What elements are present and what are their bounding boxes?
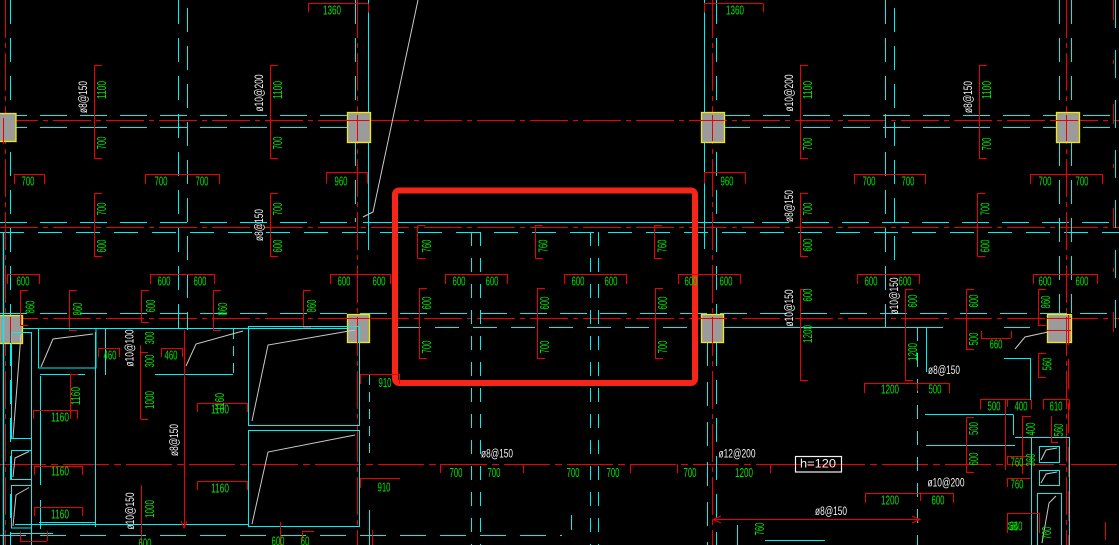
svg-text:760: 760 bbox=[1011, 455, 1024, 470]
svg-text:1100: 1100 bbox=[270, 81, 285, 99]
svg-text:600: 600 bbox=[373, 274, 386, 289]
svg-text:700: 700 bbox=[270, 203, 285, 216]
svg-text:600: 600 bbox=[720, 274, 733, 289]
svg-text:1100: 1100 bbox=[800, 81, 815, 99]
svg-text:ø10@200: ø10@200 bbox=[254, 75, 266, 112]
svg-text:600: 600 bbox=[1039, 274, 1052, 289]
svg-text:600: 600 bbox=[143, 300, 158, 313]
svg-text:h=120: h=120 bbox=[800, 459, 836, 471]
svg-text:300: 300 bbox=[142, 332, 157, 345]
svg-text:660: 660 bbox=[990, 337, 1003, 352]
svg-text:600: 600 bbox=[800, 289, 815, 302]
svg-text:1160: 1160 bbox=[212, 393, 227, 411]
svg-text:500: 500 bbox=[966, 333, 981, 346]
svg-text:700: 700 bbox=[94, 203, 109, 216]
svg-text:700: 700 bbox=[196, 174, 209, 189]
svg-text:1200: 1200 bbox=[881, 493, 899, 508]
svg-text:1100: 1100 bbox=[94, 81, 109, 99]
svg-text:700: 700 bbox=[800, 203, 815, 216]
svg-text:ø8@150: ø8@150 bbox=[928, 365, 960, 377]
svg-text:ø8@150: ø8@150 bbox=[815, 506, 847, 518]
svg-text:700: 700 bbox=[1039, 174, 1052, 189]
svg-text:600: 600 bbox=[966, 453, 981, 466]
svg-text:700: 700 bbox=[22, 174, 35, 189]
svg-text:910: 910 bbox=[378, 480, 391, 495]
svg-text:1160: 1160 bbox=[51, 464, 69, 479]
svg-text:ø10@150: ø10@150 bbox=[889, 278, 901, 315]
svg-text:700: 700 bbox=[419, 341, 434, 354]
svg-text:600: 600 bbox=[605, 274, 618, 289]
svg-text:1000: 1000 bbox=[142, 500, 157, 518]
svg-text:700: 700 bbox=[800, 138, 815, 151]
svg-text:600: 600 bbox=[272, 534, 285, 545]
svg-text:560: 560 bbox=[1039, 358, 1054, 371]
svg-text:1160: 1160 bbox=[211, 481, 229, 496]
svg-text:700: 700 bbox=[977, 203, 992, 216]
svg-text:600: 600 bbox=[94, 240, 109, 253]
svg-text:1200: 1200 bbox=[735, 465, 753, 480]
svg-text:700: 700 bbox=[684, 465, 697, 480]
svg-text:700: 700 bbox=[979, 138, 994, 151]
svg-text:1200: 1200 bbox=[881, 382, 899, 397]
svg-text:700: 700 bbox=[863, 174, 876, 189]
svg-text:ø10@100: ø10@100 bbox=[124, 330, 136, 367]
svg-text:600: 600 bbox=[932, 493, 945, 508]
svg-text:ø8@150: ø8@150 bbox=[169, 424, 181, 456]
svg-text:700: 700 bbox=[567, 465, 580, 480]
svg-text:860: 860 bbox=[304, 300, 319, 313]
svg-text:760: 760 bbox=[1039, 527, 1054, 540]
svg-text:600: 600 bbox=[537, 297, 552, 310]
svg-text:1360: 1360 bbox=[323, 3, 341, 18]
svg-text:700: 700 bbox=[1076, 174, 1089, 189]
svg-text:600: 600 bbox=[194, 274, 207, 289]
svg-text:760: 760 bbox=[419, 240, 434, 253]
svg-text:600: 600 bbox=[158, 274, 171, 289]
svg-text:760: 760 bbox=[535, 240, 550, 253]
svg-text:60: 60 bbox=[301, 534, 310, 545]
svg-text:600: 600 bbox=[453, 274, 466, 289]
svg-text:600: 600 bbox=[270, 240, 285, 253]
svg-text:860: 860 bbox=[1038, 296, 1053, 309]
svg-text:600: 600 bbox=[572, 274, 585, 289]
svg-text:700: 700 bbox=[94, 137, 109, 150]
svg-text:300: 300 bbox=[142, 355, 157, 368]
svg-text:360: 360 bbox=[1023, 454, 1038, 467]
svg-text:ø8@150: ø8@150 bbox=[963, 81, 975, 113]
svg-text:500: 500 bbox=[966, 422, 981, 435]
svg-text:960: 960 bbox=[721, 174, 734, 189]
svg-text:1000: 1000 bbox=[142, 391, 157, 409]
svg-text:ø8@150: ø8@150 bbox=[78, 81, 90, 113]
svg-text:860: 860 bbox=[215, 303, 230, 316]
svg-text:ø10@200: ø10@200 bbox=[784, 75, 796, 112]
svg-text:500: 500 bbox=[988, 399, 1001, 414]
svg-text:600: 600 bbox=[865, 274, 878, 289]
svg-text:610: 610 bbox=[1050, 399, 1063, 414]
svg-text:560: 560 bbox=[1051, 424, 1066, 437]
svg-text:700: 700 bbox=[155, 174, 168, 189]
svg-text:1200: 1200 bbox=[800, 325, 815, 343]
svg-text:600: 600 bbox=[655, 297, 670, 310]
svg-text:600: 600 bbox=[1076, 274, 1089, 289]
svg-text:700: 700 bbox=[537, 341, 552, 354]
svg-text:700: 700 bbox=[902, 174, 915, 189]
svg-text:600: 600 bbox=[977, 240, 992, 253]
svg-text:600: 600 bbox=[800, 239, 815, 252]
svg-text:600: 600 bbox=[17, 274, 30, 289]
svg-text:ø10@200: ø10@200 bbox=[928, 478, 965, 490]
svg-text:ø12@200: ø12@200 bbox=[719, 449, 756, 461]
svg-text:860: 860 bbox=[22, 301, 37, 314]
svg-text:700: 700 bbox=[450, 465, 463, 480]
svg-text:960: 960 bbox=[335, 174, 348, 189]
svg-text:600: 600 bbox=[486, 274, 499, 289]
svg-text:600: 600 bbox=[338, 274, 351, 289]
svg-text:400: 400 bbox=[1015, 399, 1028, 414]
svg-text:760: 760 bbox=[1011, 477, 1024, 492]
svg-text:910: 910 bbox=[379, 375, 392, 390]
svg-text:460: 460 bbox=[165, 348, 178, 363]
svg-text:500: 500 bbox=[929, 382, 942, 397]
svg-text:600: 600 bbox=[685, 274, 698, 289]
svg-text:ø8@150: ø8@150 bbox=[481, 449, 513, 461]
svg-text:ø10@150: ø10@150 bbox=[784, 290, 796, 327]
svg-text:ø8@150: ø8@150 bbox=[254, 209, 266, 241]
svg-text:1160: 1160 bbox=[68, 387, 83, 405]
svg-text:1100: 1100 bbox=[979, 81, 994, 99]
svg-text:400: 400 bbox=[1023, 423, 1038, 436]
svg-text:700: 700 bbox=[607, 465, 620, 480]
svg-text:460: 460 bbox=[104, 348, 117, 363]
svg-text:760: 760 bbox=[752, 523, 767, 536]
svg-text:1200: 1200 bbox=[905, 343, 920, 361]
svg-text:600: 600 bbox=[419, 297, 434, 310]
svg-text:ø10@150: ø10@150 bbox=[125, 493, 137, 530]
svg-text:1160: 1160 bbox=[51, 507, 69, 522]
svg-text:600: 600 bbox=[905, 295, 920, 308]
svg-text:600: 600 bbox=[139, 536, 152, 545]
svg-text:700: 700 bbox=[655, 341, 670, 354]
svg-text:760: 760 bbox=[654, 240, 669, 253]
svg-text:700: 700 bbox=[270, 137, 285, 150]
svg-text:860: 860 bbox=[70, 303, 85, 316]
svg-text:1160: 1160 bbox=[51, 410, 69, 425]
svg-text:ø8@150: ø8@150 bbox=[784, 190, 796, 222]
svg-text:1360: 1360 bbox=[726, 3, 744, 18]
svg-text:700: 700 bbox=[488, 465, 501, 480]
svg-text:600: 600 bbox=[966, 295, 981, 308]
